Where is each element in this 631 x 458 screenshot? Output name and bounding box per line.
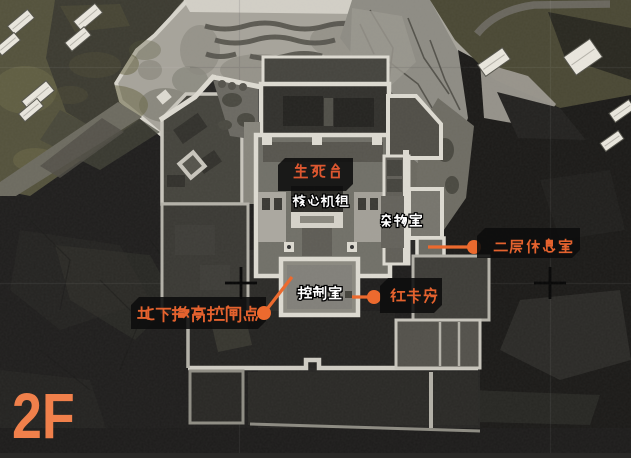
svg-text:2F: 2F bbox=[12, 380, 75, 453]
